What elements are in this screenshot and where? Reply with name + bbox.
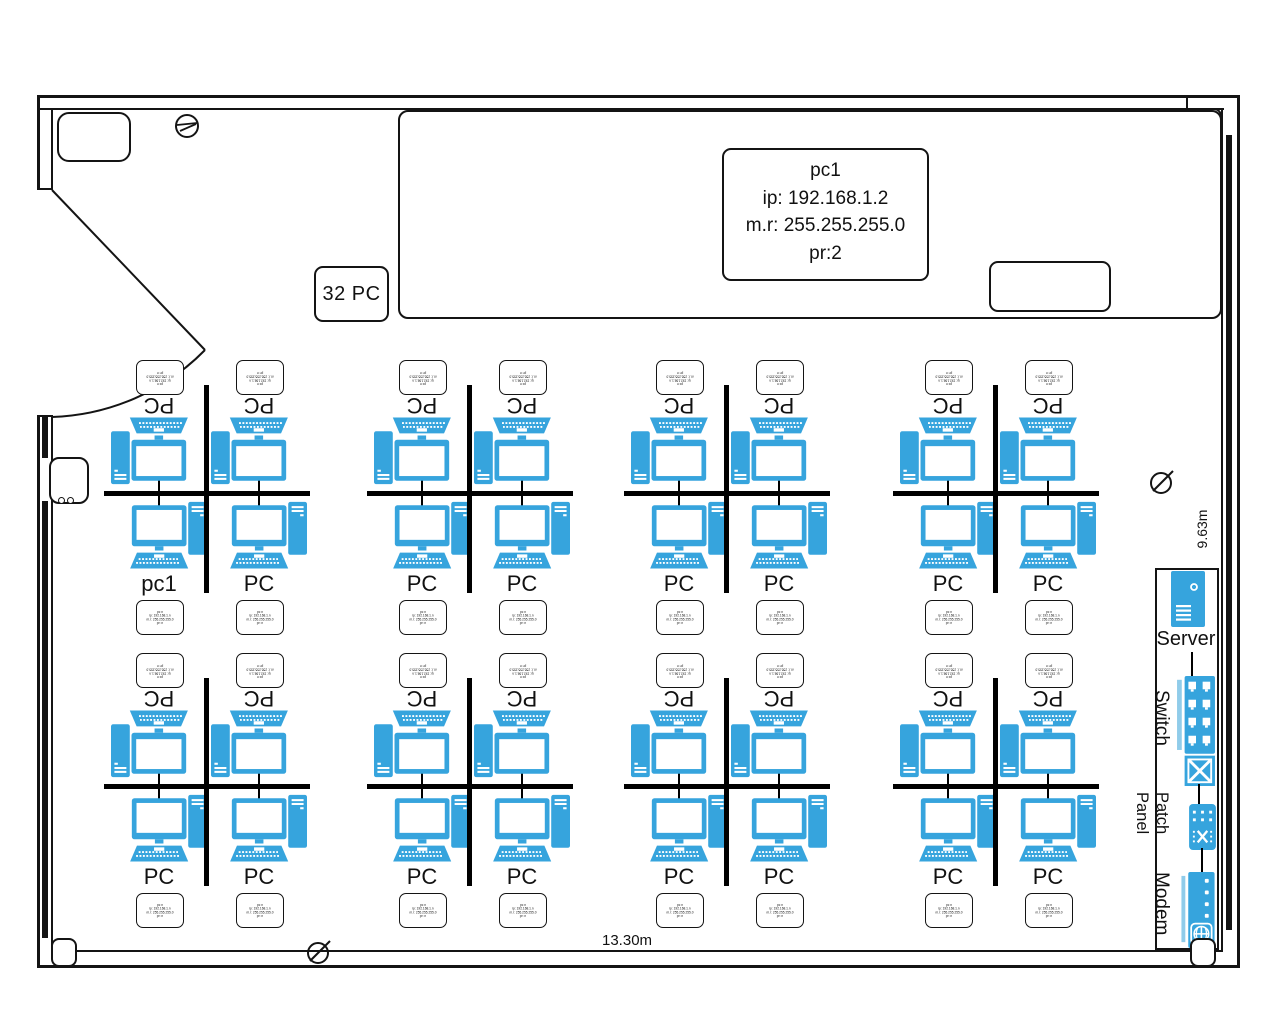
pc-info-card-line: m.r: 255.255.255.0 <box>502 911 544 915</box>
pc-info-card-line: ip: 192.168.1.n <box>239 614 281 618</box>
pc-info-card-line: m.r: 255.255.255.0 <box>1028 618 1070 622</box>
pc-info-card-line: pc n <box>402 674 444 678</box>
pc-info-card-line: m.r: 255.255.255.0 <box>502 374 544 378</box>
pc-info-card-line: m.r: 255.255.255.0 <box>928 911 970 915</box>
pc-info-card: pc nip: 192.168.1.nm.r: 255.255.255.0pr:… <box>1025 360 1073 395</box>
pc-info-card-line: ip: 192.168.1.n <box>1028 614 1070 618</box>
rack-cable-switch-patch <box>1198 784 1200 806</box>
pc-info-card: pc nip: 192.168.1.nm.r: 255.255.255.0pr:… <box>236 893 284 928</box>
pc-info-card: pc nip: 192.168.1.nm.r: 255.255.255.0pr:… <box>236 360 284 395</box>
pc-info-card: pc nip: 192.168.1.nm.r: 255.255.255.0pr:… <box>499 600 547 635</box>
pc-info-card-lines: pc nip: 192.168.1.nm.r: 255.255.255.0pr:… <box>502 370 544 385</box>
pc-info-card-line: m.r: 255.255.255.0 <box>928 667 970 671</box>
desktop-pc-icon <box>225 500 307 572</box>
pc-info-card-line: ip: 192.168.1.n <box>402 907 444 911</box>
pc-info-card-lines: pc nip: 192.168.1.nm.r: 255.255.255.0pr:… <box>928 663 970 678</box>
pc-info-card-line: m.r: 255.255.255.0 <box>659 911 701 915</box>
desktop-pc-icon <box>645 793 727 865</box>
pc-info-card-line: pr: n <box>928 663 970 667</box>
pc-cluster: PCpc nip: 192.168.1.nm.r: 255.255.255.0p… <box>891 360 1101 634</box>
pc-info-card-line: pc n <box>139 674 181 678</box>
pc-info-card-line: m.r: 255.255.255.0 <box>659 618 701 622</box>
pc-info-card: pc nip: 192.168.1.nm.r: 255.255.255.0pr:… <box>656 653 704 688</box>
pc-info-card-line: pc n <box>139 610 181 614</box>
pc-info-card-line: m.r: 255.255.255.0 <box>139 618 181 622</box>
pc-info-card-line: ip: 192.168.1.n <box>659 378 701 382</box>
room-width-dimension: 13.30m <box>602 932 652 949</box>
computer-lab-floor-plan: pc1 ip: 192.168.1.2 m.r: 255.255.255.0 p… <box>0 0 1280 1017</box>
pc-info-card: pc nip: 192.168.1.nm.r: 255.255.255.0pr:… <box>399 600 447 635</box>
pc-info-card-line: ip: 192.168.1.n <box>928 378 970 382</box>
pc-info-card-line: pr: n <box>139 663 181 667</box>
pc-info-card-lines: pc nip: 192.168.1.nm.r: 255.255.255.0pr:… <box>659 903 701 918</box>
pc-label: PC <box>998 685 1098 711</box>
desktop-pc-icon <box>631 707 713 779</box>
pc-info-card: pc nip: 192.168.1.nm.r: 255.255.255.0pr:… <box>399 360 447 395</box>
pc-info-card-line: pr: n <box>759 621 801 625</box>
desktop-pc-icon <box>645 500 727 572</box>
pc-info-card: pc nip: 192.168.1.nm.r: 255.255.255.0pr:… <box>399 893 447 928</box>
pc-label: PC <box>209 392 309 418</box>
pc-info-card-line: m.r: 255.255.255.0 <box>239 618 281 622</box>
pc-label: PC <box>472 685 572 711</box>
pc-info-card-line: pr: n <box>239 370 281 374</box>
cluster-divider-horizontal <box>624 784 830 789</box>
pc-info-card-line: pc n <box>402 903 444 907</box>
pc-info-card-line: pr: n <box>239 663 281 667</box>
desktop-pc-icon <box>900 707 982 779</box>
pc-info-card-line: pc n <box>502 610 544 614</box>
pc-info-card: pc nip: 192.168.1.nm.r: 255.255.255.0pr:… <box>925 360 973 395</box>
pc-label: PC <box>372 571 472 597</box>
pc-label: PC <box>209 864 309 890</box>
pc-info-card-line: ip: 192.168.1.n <box>759 614 801 618</box>
patch-panel-word2: Panel <box>1132 792 1152 880</box>
cluster-divider-horizontal <box>367 784 573 789</box>
pc-info-card: pc nip: 192.168.1.nm.r: 255.255.255.0pr:… <box>136 360 184 395</box>
desktop-pc-icon <box>745 793 827 865</box>
window-stripe-right <box>1226 135 1232 930</box>
desktop-pc-icon <box>731 707 813 779</box>
pc-info-card-line: pc n <box>239 381 281 385</box>
callout-line-name: pc1 <box>724 157 927 185</box>
pc-info-card: pc nip: 192.168.1.nm.r: 255.255.255.0pr:… <box>499 360 547 395</box>
pillar-bottom-left <box>51 938 77 967</box>
pc-label: PC <box>629 392 729 418</box>
desktop-pc-icon <box>125 793 207 865</box>
pc-info-card-line: ip: 192.168.1.n <box>402 614 444 618</box>
pc-info-card: pc nip: 192.168.1.nm.r: 255.255.255.0pr:… <box>656 600 704 635</box>
pc-info-card-lines: pc nip: 192.168.1.nm.r: 255.255.255.0pr:… <box>139 663 181 678</box>
pc-label: PC <box>472 392 572 418</box>
desktop-pc-icon <box>631 414 713 486</box>
pc-info-card-line: ip: 192.168.1.n <box>139 378 181 382</box>
pc-label: PC <box>898 685 998 711</box>
pillar-bottom-right <box>1190 938 1216 967</box>
rack-cable-server-switch <box>1191 652 1193 678</box>
pc-label: PC <box>898 392 998 418</box>
pc-info-card-line: pr: n <box>759 370 801 374</box>
switch-label: Switch <box>1150 690 1172 785</box>
pc-info-card-line: pr: n <box>139 914 181 918</box>
pc-info-card-line: pc n <box>139 381 181 385</box>
pc-label: PC <box>998 571 1098 597</box>
pc-info-card-line: ip: 192.168.1.n <box>402 378 444 382</box>
pc-info-card-line: ip: 192.168.1.n <box>139 671 181 675</box>
pc-cluster: PCpc nip: 192.168.1.nm.r: 255.255.255.0p… <box>102 360 312 634</box>
pc-label: PC <box>629 685 729 711</box>
pc-cluster: PCpc nip: 192.168.1.nm.r: 255.255.255.0p… <box>622 653 832 927</box>
desktop-pc-icon <box>900 414 982 486</box>
pc1-callout-box: pc1 ip: 192.168.1.2 m.r: 255.255.255.0 p… <box>722 148 929 281</box>
pc-info-card-line: pc n <box>1028 610 1070 614</box>
pc-info-card: pc nip: 192.168.1.nm.r: 255.255.255.0pr:… <box>756 653 804 688</box>
server-label: Server <box>1153 628 1219 651</box>
pc-label: PC <box>372 864 472 890</box>
pc-info-card: pc nip: 192.168.1.nm.r: 255.255.255.0pr:… <box>925 653 973 688</box>
pc-info-card-lines: pc nip: 192.168.1.nm.r: 255.255.255.0pr:… <box>928 610 970 625</box>
pc-label: PC <box>629 571 729 597</box>
pc-cluster: PCpc nip: 192.168.1.nm.r: 255.255.255.0p… <box>102 653 312 927</box>
desktop-pc-icon <box>111 707 193 779</box>
pc-info-card-line: pc n <box>239 903 281 907</box>
pc-info-card-line: ip: 192.168.1.n <box>928 614 970 618</box>
pc-info-card-line: m.r: 255.255.255.0 <box>759 618 801 622</box>
pc-info-card-lines: pc nip: 192.168.1.nm.r: 255.255.255.0pr:… <box>239 610 281 625</box>
pc-info-card-line: m.r: 255.255.255.0 <box>659 374 701 378</box>
pc-info-card-line: m.r: 255.255.255.0 <box>759 374 801 378</box>
pc-info-card-line: ip: 192.168.1.n <box>1028 671 1070 675</box>
pc-info-card-lines: pc nip: 192.168.1.nm.r: 255.255.255.0pr:… <box>502 663 544 678</box>
pc-label: PC <box>472 571 572 597</box>
pc-cluster: PCpc nip: 192.168.1.nm.r: 255.255.255.0p… <box>365 653 575 927</box>
wall-right-outer <box>1237 95 1240 968</box>
pc-info-card-line: pr: n <box>928 914 970 918</box>
pc-info-card-line: pc n <box>1028 903 1070 907</box>
pc-info-card-lines: pc nip: 192.168.1.nm.r: 255.255.255.0pr:… <box>659 610 701 625</box>
pc-info-card: pc nip: 192.168.1.nm.r: 255.255.255.0pr:… <box>656 360 704 395</box>
pc-info-card-line: pc n <box>402 610 444 614</box>
pc-info-card: pc nip: 192.168.1.nm.r: 255.255.255.0pr:… <box>236 653 284 688</box>
pc-info-card-line: pr: n <box>759 914 801 918</box>
pc-info-card-lines: pc nip: 192.168.1.nm.r: 255.255.255.0pr:… <box>1028 370 1070 385</box>
pc-info-card-line: pc n <box>659 610 701 614</box>
pc-info-card-line: ip: 192.168.1.n <box>239 378 281 382</box>
pc-info-card: pc nip: 192.168.1.nm.r: 255.255.255.0pr:… <box>136 600 184 635</box>
pc-info-card-lines: pc nip: 192.168.1.nm.r: 255.255.255.0pr:… <box>239 903 281 918</box>
desktop-pc-icon <box>211 707 293 779</box>
pc-cluster: PCpc nip: 192.168.1.nm.r: 255.255.255.0p… <box>365 360 575 634</box>
sensor-symbol-icon <box>174 113 200 139</box>
desktop-pc-icon <box>374 414 456 486</box>
desktop-pc-icon <box>474 707 556 779</box>
pc-info-card-line: pr: n <box>139 370 181 374</box>
pc-info-card: pc nip: 192.168.1.nm.r: 255.255.255.0pr:… <box>656 893 704 928</box>
pc-info-card-line: m.r: 255.255.255.0 <box>759 911 801 915</box>
desktop-pc-icon <box>111 414 193 486</box>
pc-info-card-line: m.r: 255.255.255.0 <box>402 618 444 622</box>
pc-info-card-line: pc n <box>502 381 544 385</box>
pc-info-card-line: m.r: 255.255.255.0 <box>659 667 701 671</box>
rack-cable-patch-modem <box>1201 848 1203 874</box>
pc-info-card-lines: pc nip: 192.168.1.nm.r: 255.255.255.0pr:… <box>239 663 281 678</box>
pc-info-card-line: pr: n <box>502 370 544 374</box>
pc-info-card-line: pr: n <box>139 621 181 625</box>
outlet-symbol-icon <box>1149 469 1175 495</box>
pc-label: PC <box>729 864 829 890</box>
pc-info-card-lines: pc nip: 192.168.1.nm.r: 255.255.255.0pr:… <box>139 610 181 625</box>
pc-info-card-lines: pc nip: 192.168.1.nm.r: 255.255.255.0pr:… <box>759 610 801 625</box>
patch-panel-word1: Patch <box>1152 792 1172 880</box>
pc-label: PC <box>109 864 209 890</box>
pc-info-card-lines: pc nip: 192.168.1.nm.r: 255.255.255.0pr:… <box>1028 663 1070 678</box>
pc-info-card-lines: pc nip: 192.168.1.nm.r: 255.255.255.0pr:… <box>402 903 444 918</box>
empty-note-box <box>989 261 1111 312</box>
pc-info-card-line: pr: n <box>239 914 281 918</box>
pc-info-card-lines: pc nip: 192.168.1.nm.r: 255.255.255.0pr:… <box>759 663 801 678</box>
pc-info-card-line: pr: n <box>1028 370 1070 374</box>
wall-bottom-inner <box>51 950 1223 952</box>
desktop-pc-icon <box>474 414 556 486</box>
pc-info-card-line: pr: n <box>402 370 444 374</box>
pc-info-card-line: pc n <box>759 381 801 385</box>
desktop-pc-icon <box>125 500 207 572</box>
pc-label: PC <box>729 685 829 711</box>
wall-top-outer <box>37 95 1240 98</box>
room-height-dimension: 9.63m <box>1194 494 1210 564</box>
pc-info-card-line: pc n <box>1028 381 1070 385</box>
pc-info-card-line: ip: 192.168.1.n <box>928 907 970 911</box>
pc-info-card-line: pc n <box>502 903 544 907</box>
capacity-box: 32 PC <box>314 266 389 322</box>
desktop-pc-icon <box>488 793 570 865</box>
pc-label: PC <box>372 392 472 418</box>
pc-cluster: PCpc nip: 192.168.1.nm.r: 255.255.255.0p… <box>891 653 1101 927</box>
pc-info-card-line: pr: n <box>659 663 701 667</box>
pc-info-card-lines: pc nip: 192.168.1.nm.r: 255.255.255.0pr:… <box>659 663 701 678</box>
pc-label: PC <box>472 864 572 890</box>
pc-label: PC <box>898 571 998 597</box>
pc-label: pc1 <box>109 571 209 597</box>
pc-info-card-line: ip: 192.168.1.n <box>239 671 281 675</box>
desktop-pc-icon <box>914 500 996 572</box>
pc-label: PC <box>729 392 829 418</box>
desktop-pc-icon <box>211 414 293 486</box>
pc-info-card-line: m.r: 255.255.255.0 <box>239 374 281 378</box>
pc-info-card: pc nip: 192.168.1.nm.r: 255.255.255.0pr:… <box>499 893 547 928</box>
pc-label: PC <box>209 571 309 597</box>
pc-info-card-line: ip: 192.168.1.n <box>659 614 701 618</box>
pc-info-card-line: m.r: 255.255.255.0 <box>1028 667 1070 671</box>
pc-info-card-line: pc n <box>759 674 801 678</box>
pc-info-card-line: m.r: 255.255.255.0 <box>402 374 444 378</box>
pc-info-card-line: ip: 192.168.1.n <box>239 907 281 911</box>
pc-info-card-lines: pc nip: 192.168.1.nm.r: 255.255.255.0pr:… <box>659 370 701 385</box>
pc-info-card-line: m.r: 255.255.255.0 <box>402 667 444 671</box>
pc-info-card-line: ip: 192.168.1.n <box>139 907 181 911</box>
wall-bottom-outer <box>37 965 1240 968</box>
pc-label: PC <box>629 864 729 890</box>
pc-info-card-line: pc n <box>402 381 444 385</box>
pc-info-card-lines: pc nip: 192.168.1.nm.r: 255.255.255.0pr:… <box>1028 903 1070 918</box>
modem-label: Modem <box>1150 872 1172 957</box>
cluster-divider-horizontal <box>104 784 310 789</box>
desktop-pc-icon <box>388 793 470 865</box>
pc-info-card-line: ip: 192.168.1.n <box>402 671 444 675</box>
pc-cluster: PCpc nip: 192.168.1.nm.r: 255.255.255.0p… <box>622 360 832 634</box>
pc-label: PC <box>998 864 1098 890</box>
pc-info-card-line: pr: n <box>928 370 970 374</box>
pc-info-card-line: ip: 192.168.1.n <box>1028 907 1070 911</box>
pc-info-card-line: m.r: 255.255.255.0 <box>239 667 281 671</box>
pc-info-card: pc nip: 192.168.1.nm.r: 255.255.255.0pr:… <box>1025 653 1073 688</box>
pc-info-card-line: m.r: 255.255.255.0 <box>928 618 970 622</box>
pc-info-card: pc nip: 192.168.1.nm.r: 255.255.255.0pr:… <box>236 600 284 635</box>
pc-info-card-line: m.r: 255.255.255.0 <box>1028 911 1070 915</box>
desktop-pc-icon <box>388 500 470 572</box>
pc-label: PC <box>898 864 998 890</box>
pc-info-card: pc nip: 192.168.1.nm.r: 255.255.255.0pr:… <box>1025 600 1073 635</box>
pc-info-card-line: ip: 192.168.1.n <box>502 614 544 618</box>
pc-info-card-line: ip: 192.168.1.n <box>502 671 544 675</box>
pc-info-card: pc nip: 192.168.1.nm.r: 255.255.255.0pr:… <box>399 653 447 688</box>
outlet-symbol-icon <box>306 939 332 965</box>
pc-info-card-line: m.r: 255.255.255.0 <box>402 911 444 915</box>
pc-label: PC <box>998 392 1098 418</box>
pc-info-card: pc nip: 192.168.1.nm.r: 255.255.255.0pr:… <box>756 893 804 928</box>
patch-panel-icon <box>1189 804 1216 850</box>
pc-info-card-line: pc n <box>659 381 701 385</box>
pc-info-card-line: m.r: 255.255.255.0 <box>139 911 181 915</box>
pc-info-card-line: pr: n <box>402 914 444 918</box>
cluster-divider-horizontal <box>893 784 1099 789</box>
pc-info-card-line: pr: n <box>659 914 701 918</box>
desktop-pc-icon <box>1014 500 1096 572</box>
desktop-pc-icon <box>488 500 570 572</box>
desktop-pc-icon <box>225 793 307 865</box>
wall-tick-top-right <box>1186 95 1188 110</box>
desktop-pc-icon <box>914 793 996 865</box>
pc-info-card-line: pc n <box>928 674 970 678</box>
desktop-pc-icon <box>745 500 827 572</box>
wall-left-outer-upper <box>37 95 40 190</box>
pc-info-card: pc nip: 192.168.1.nm.r: 255.255.255.0pr:… <box>756 600 804 635</box>
pc-info-card-line: pc n <box>239 610 281 614</box>
pc-info-card-line: pr: n <box>502 914 544 918</box>
pc-info-card-line: pc n <box>759 903 801 907</box>
wall-left-inner-upper <box>51 108 53 188</box>
pc-info-card-line: pr: n <box>928 621 970 625</box>
pc-info-card-line: ip: 192.168.1.n <box>759 378 801 382</box>
pc-info-card: pc nip: 192.168.1.nm.r: 255.255.255.0pr:… <box>1025 893 1073 928</box>
window-stripe-left-lower <box>42 501 48 938</box>
modem-icon <box>1181 872 1215 948</box>
pc-info-card: pc nip: 192.168.1.nm.r: 255.255.255.0pr:… <box>925 600 973 635</box>
pc-info-card-line: pr: n <box>659 621 701 625</box>
pc-info-card-line: pr: n <box>1028 621 1070 625</box>
pc-info-card-line: ip: 192.168.1.n <box>759 671 801 675</box>
pc-info-card-line: pc n <box>139 903 181 907</box>
pc-info-card-line: pc n <box>759 610 801 614</box>
capacity-label: 32 PC <box>316 268 387 320</box>
pc-label: PC <box>109 685 209 711</box>
pc-info-card-lines: pc nip: 192.168.1.nm.r: 255.255.255.0pr:… <box>502 610 544 625</box>
pc-info-card-line: ip: 192.168.1.n <box>928 671 970 675</box>
pc-info-card-line: ip: 192.168.1.n <box>502 378 544 382</box>
pc-info-card-lines: pc nip: 192.168.1.nm.r: 255.255.255.0pr:… <box>759 370 801 385</box>
pc-info-card-line: pc n <box>928 381 970 385</box>
desktop-pc-icon <box>374 707 456 779</box>
pc-info-card-line: pc n <box>928 903 970 907</box>
pc-info-card-line: pr: n <box>402 663 444 667</box>
pc-info-card-line: pc n <box>659 903 701 907</box>
callout-line-printer: pr:2 <box>724 240 927 268</box>
pc-info-card: pc nip: 192.168.1.nm.r: 255.255.255.0pr:… <box>925 893 973 928</box>
pillar-detail-dot <box>67 497 74 504</box>
pc-info-card-line: ip: 192.168.1.n <box>759 907 801 911</box>
pc-info-card-line: ip: 192.168.1.n <box>1028 378 1070 382</box>
pc-info-card-lines: pc nip: 192.168.1.nm.r: 255.255.255.0pr:… <box>239 370 281 385</box>
wall-left-outer-lower <box>37 417 40 968</box>
switch-icon <box>1177 676 1215 786</box>
pc-info-card-lines: pc nip: 192.168.1.nm.r: 255.255.255.0pr:… <box>402 370 444 385</box>
cluster-divider-horizontal <box>104 491 310 496</box>
pc-label: PC <box>209 685 309 711</box>
pc-info-card-lines: pc nip: 192.168.1.nm.r: 255.255.255.0pr:… <box>402 663 444 678</box>
pc-info-card-lines: pc nip: 192.168.1.nm.r: 255.255.255.0pr:… <box>139 903 181 918</box>
pc-info-card-line: m.r: 255.255.255.0 <box>502 618 544 622</box>
pc-info-card-lines: pc nip: 192.168.1.nm.r: 255.255.255.0pr:… <box>928 370 970 385</box>
pc-info-card-line: m.r: 255.255.255.0 <box>1028 374 1070 378</box>
pc-info-card-line: ip: 192.168.1.n <box>502 907 544 911</box>
pc-info-card-lines: pc nip: 192.168.1.nm.r: 255.255.255.0pr:… <box>928 903 970 918</box>
pc-info-card-lines: pc nip: 192.168.1.nm.r: 255.255.255.0pr:… <box>502 903 544 918</box>
pc-info-card-line: pc n <box>502 674 544 678</box>
callout-line-ip: ip: 192.168.1.2 <box>724 185 927 213</box>
callout-line-mask: m.r: 255.255.255.0 <box>724 212 927 240</box>
pc-info-card-line: m.r: 255.255.255.0 <box>502 667 544 671</box>
pc-info-card-line: pr: n <box>659 370 701 374</box>
pc-info-card-line: pr: n <box>502 621 544 625</box>
pc-info-card-line: m.r: 255.255.255.0 <box>139 667 181 671</box>
desktop-pc-icon <box>1014 793 1096 865</box>
pc-info-card: pc nip: 192.168.1.nm.r: 255.255.255.0pr:… <box>756 360 804 395</box>
pc-info-card-line: pr: n <box>402 621 444 625</box>
pc-info-card-line: pr: n <box>759 663 801 667</box>
pillar-detail-dot <box>58 497 65 504</box>
pc-info-card-line: m.r: 255.255.255.0 <box>928 374 970 378</box>
pc-info-card-line: pr: n <box>239 621 281 625</box>
pc-info-card-line: pc n <box>239 674 281 678</box>
cluster-divider-horizontal <box>624 491 830 496</box>
pc-info-card-line: ip: 192.168.1.n <box>659 671 701 675</box>
pc-info-card-lines: pc nip: 192.168.1.nm.r: 255.255.255.0pr:… <box>402 610 444 625</box>
cluster-divider-horizontal <box>367 491 573 496</box>
pc-info-card-line: pc n <box>928 610 970 614</box>
pc-info-card-line: m.r: 255.255.255.0 <box>239 911 281 915</box>
pc-info-card-line: ip: 192.168.1.n <box>659 907 701 911</box>
pc-info-card: pc nip: 192.168.1.nm.r: 255.255.255.0pr:… <box>136 653 184 688</box>
pc-info-card-line: ip: 192.168.1.n <box>139 614 181 618</box>
cluster-divider-horizontal <box>893 491 1099 496</box>
pc-info-card-line: pr: n <box>1028 663 1070 667</box>
pc-info-card-line: pc n <box>1028 674 1070 678</box>
pc-info-card-line: pc n <box>659 674 701 678</box>
pc-info-card-line: pr: n <box>1028 914 1070 918</box>
pillar-top-left <box>57 112 131 162</box>
pc-info-card: pc nip: 192.168.1.nm.r: 255.255.255.0pr:… <box>499 653 547 688</box>
pc-info-card-line: pr: n <box>502 663 544 667</box>
